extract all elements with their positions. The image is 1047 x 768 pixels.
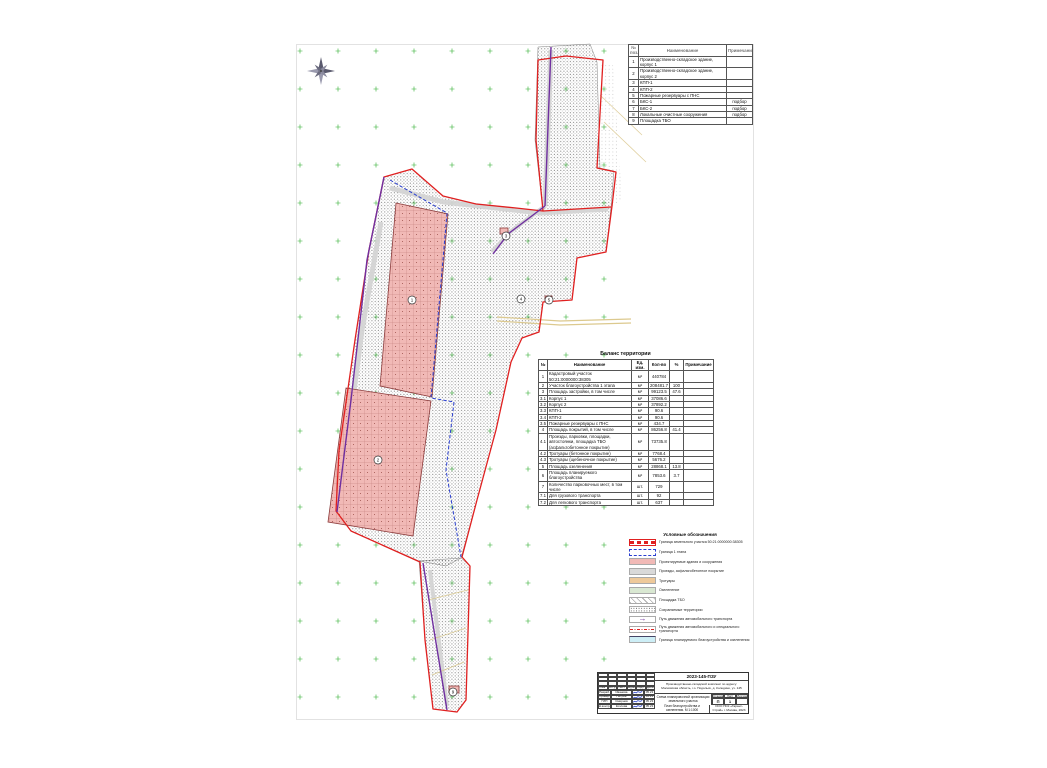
legend-swatch-pink (629, 558, 656, 565)
cell (727, 56, 753, 68)
document-code-text: 2023-145-ПЗУ (687, 674, 717, 679)
col-header: Примечание (684, 359, 714, 371)
table-row: 9Площадка ТБО (629, 118, 753, 124)
table-row: 6Площадь планируемого благоустройствам²7… (539, 469, 714, 481)
legend-item-label: Граница земельного участка 50:21:0000000… (659, 540, 743, 544)
cell: 28868.1 (649, 463, 670, 469)
cell: шт. (632, 499, 649, 505)
legend-item: Путь движения автомобильного и специальн… (629, 625, 751, 633)
legend-item: →Путь движения автомобильного транспорта (629, 616, 751, 623)
col-header: % (670, 359, 684, 371)
cell: 1 (539, 371, 548, 383)
legend-item: Граница земельного участка 50:21:0000000… (629, 539, 751, 546)
position-balloon: 4 (517, 295, 525, 303)
position-balloon: 2 (374, 456, 382, 464)
legend-swatch-gray (629, 568, 656, 575)
legend-item-label: Путь движения автомобильного и специальн… (659, 625, 751, 633)
legend-item: Граница 1 этапа (629, 549, 751, 556)
col-header: № (539, 359, 548, 371)
table-row: 1Производственно-складское здание, корпу… (629, 56, 753, 68)
legend-swatch-cyan (629, 636, 656, 643)
cell: Кадастровый участок 50:21:0000000:38305 (548, 371, 632, 383)
legend-swatch-route-red (629, 626, 656, 633)
legend-item-label: Граница 1 этапа (659, 550, 686, 554)
legend-item: Сохраняемые территории (629, 606, 751, 613)
explication-table: № поз.НаименованиеПримечание1Производств… (628, 44, 753, 125)
position-balloon: 1 (408, 296, 416, 304)
legend-swatch-route-purple: → (629, 616, 656, 623)
cell: м² (632, 469, 649, 481)
legend-swatch-tan (629, 577, 656, 584)
col-header: № поз. (629, 45, 639, 57)
cell: Для легкового транспорта (548, 499, 632, 505)
col-header: Ед. изм. (632, 359, 649, 371)
cell: 3.7 (670, 469, 684, 481)
document-code: 2023-145-ПЗУ (655, 673, 748, 681)
legend-swatch-green (629, 587, 656, 594)
cell: Производственно-складское здание, корпус… (639, 68, 727, 80)
cell (684, 469, 714, 481)
cell: 1 (629, 56, 639, 68)
table-row: 1Кадастровый участок 50:21:0000000:38305… (539, 371, 714, 383)
site-plan-map: 123459 (0, 0, 1047, 768)
table-row: 2Производственно-складское здание, корпу… (629, 68, 753, 80)
col-header: Наименование (548, 359, 632, 371)
legend-item: Тротуары (629, 577, 751, 584)
cell (684, 481, 714, 493)
legend: Условные обозначения Граница земельного … (629, 532, 751, 646)
cell (727, 68, 753, 80)
cell: 440784 (649, 371, 670, 383)
cell: 7.2 (539, 499, 548, 505)
legend-item: Озеленение (629, 587, 751, 594)
title-block: Изм.Кол.учЛист№док.Подп.Дата Разраб. Ива… (597, 672, 749, 714)
cell (684, 433, 714, 450)
person-name: Козлова (611, 704, 632, 709)
cell: 637 (649, 499, 670, 505)
cell (670, 371, 684, 383)
legend-item-label: Граница планируемого благоустройства и о… (659, 638, 749, 642)
legend-item: Граница планируемого благоустройства и о… (629, 636, 751, 643)
cell: 7 (539, 481, 548, 493)
cell: Производственно-складское здание, корпус… (639, 56, 727, 68)
position-balloon: 9 (449, 688, 457, 696)
legend-item: Проектируемые здания и сооружения (629, 558, 751, 565)
col-header: Примечание (727, 45, 753, 57)
legend-item: Проезды, асфальтобетонное покрытие (629, 568, 751, 575)
cell: 7853.6 (649, 469, 670, 481)
legend-swatch-boundary-blue (629, 549, 656, 556)
cell: шт. (632, 481, 649, 493)
company-name: ООО ПСК «Гарант-Строй» г. Москва, 2023 (710, 705, 748, 713)
cell: 208481.7 (649, 382, 670, 388)
cell: Количество парковочных мест, в том числе (548, 481, 632, 493)
legend-item-label: Проектируемые здания и сооружения (659, 560, 722, 564)
legend-swatch-hatch (629, 597, 656, 604)
cell (684, 371, 714, 383)
legend-swatch-stipple (629, 606, 656, 613)
cell: 729 (649, 481, 670, 493)
cell: Проезды, парковки, площадки, автостоянки… (548, 433, 632, 450)
legend-item-label: Тротуары (659, 579, 675, 583)
col-header: Кол-во (649, 359, 670, 371)
table-row: 4.1Проезды, парковки, площадки, автостоя… (539, 433, 714, 450)
cell (727, 118, 753, 124)
cell: 9 (629, 118, 639, 124)
route-arrow-icon: → (639, 616, 647, 622)
cell: 4.1 (539, 433, 548, 450)
table-row: 7Количество парковочных мест, в том числ… (539, 481, 714, 493)
signature (632, 704, 644, 709)
cell: 37892.2 (649, 402, 670, 408)
legend-item-label: Сохраняемые территории (659, 608, 703, 612)
legend-item-label: Проезды, асфальтобетонное покрытие (659, 569, 724, 573)
cell: 99123.5 (649, 389, 670, 395)
compass-rose-icon (307, 57, 335, 85)
position-balloon: 3 (502, 232, 510, 240)
balance-table-wrap: Баланс территории №НаименованиеЕд. изм.К… (538, 351, 713, 506)
legend-title: Условные обозначения (629, 532, 751, 537)
cell: Площадка ТБО (639, 118, 727, 124)
cell (670, 481, 684, 493)
legend-item-label: Путь движения автомобильного транспорта (659, 617, 732, 621)
cell (684, 499, 714, 505)
legend-items: Граница земельного участка 50:21:0000000… (629, 539, 751, 643)
table-row: 7.2Для легкового транспорташт.637 (539, 499, 714, 505)
title-block-main: 2023-145-ПЗУ Производственно-складской к… (655, 673, 748, 713)
legend-item: Площадка ТБО (629, 597, 751, 604)
cell: 6 (539, 469, 548, 481)
balance-table: №НаименованиеЕд. изм.Кол-во%Примечание1К… (538, 359, 714, 507)
sign-date: 05.23 (644, 704, 655, 709)
role-label: Н.контр. (598, 704, 611, 709)
title-block-signatures: Изм.Кол.учЛист№док.Подп.Дата Разраб. Ива… (598, 673, 655, 713)
cell (670, 433, 684, 450)
project-description: Производственно-складской комплекс по ад… (655, 681, 748, 694)
legend-item-label: Озеленение (659, 588, 679, 592)
legend-item-label: Площадка ТБО (659, 598, 685, 602)
cell: 37086.6 (649, 395, 670, 401)
cell: Площадь планируемого благоустройства (548, 469, 632, 481)
balance-table-title: Баланс территории (538, 351, 713, 357)
cell: 86256.8 (649, 427, 670, 433)
drawing-sheet-canvas: 123459 № поз.НаименованиеПримечание1Прои… (0, 0, 1047, 768)
legend-swatch-boundary-red (629, 539, 656, 546)
table-row: 8Локальные очистные сооруженияподбор (629, 111, 753, 117)
cell: м² (632, 371, 649, 383)
position-balloon: 5 (545, 296, 553, 304)
sheet-title-2: План благоустройства и озеленения. М 1:1… (655, 705, 710, 713)
cell: м² (632, 433, 649, 450)
cell (670, 499, 684, 505)
col-header: Наименование (639, 45, 727, 57)
cell: 73735.8 (649, 433, 670, 450)
explication-table-wrap: № поз.НаименованиеПримечание1Производств… (628, 44, 752, 125)
cell: 2 (629, 68, 639, 80)
